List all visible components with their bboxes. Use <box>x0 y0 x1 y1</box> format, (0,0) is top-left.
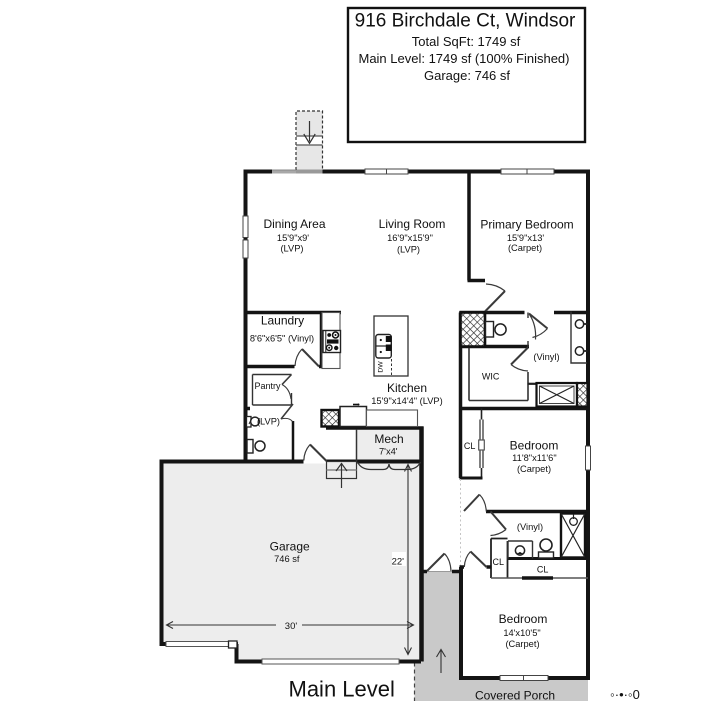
svg-text:Pantry: Pantry <box>254 381 281 391</box>
svg-text:◦·•·◦0: ◦·•·◦0 <box>610 687 640 701</box>
svg-text:Main Level: 1749 sf (100% Fini: Main Level: 1749 sf (100% Finished) <box>358 51 569 66</box>
svg-text:CL: CL <box>464 441 476 451</box>
svg-text:15'9"x14'4" (LVP): 15'9"x14'4" (LVP) <box>371 396 442 406</box>
svg-text:916 Birchdale Ct, Windsor: 916 Birchdale Ct, Windsor <box>355 11 576 32</box>
svg-text:11'8"x11'6": 11'8"x11'6" <box>512 453 556 463</box>
svg-text:Total SqFt: 1749 sf: Total SqFt: 1749 sf <box>412 34 521 49</box>
svg-text:(Vinyl): (Vinyl) <box>517 522 543 532</box>
svg-text:30': 30' <box>285 621 298 632</box>
svg-text:DW: DW <box>378 361 385 373</box>
svg-text:(Vinyl): (Vinyl) <box>533 352 559 362</box>
svg-text:14'x10'5": 14'x10'5" <box>503 628 540 638</box>
svg-text:Laundry: Laundry <box>261 314 304 328</box>
svg-text:Garage: 746 sf: Garage: 746 sf <box>424 68 510 83</box>
svg-text:Primary Bedroom: Primary Bedroom <box>480 217 573 231</box>
svg-text:7'x4': 7'x4' <box>379 447 398 457</box>
svg-text:(LVP): (LVP) <box>257 417 280 427</box>
svg-text:746 sf: 746 sf <box>274 554 300 564</box>
svg-text:(LVP): (LVP) <box>280 244 303 254</box>
svg-text:8'6"x6'5" (Vinyl): 8'6"x6'5" (Vinyl) <box>250 333 314 343</box>
svg-text:15'9"x9': 15'9"x9' <box>277 233 309 243</box>
svg-text:Main Level: Main Level <box>289 677 395 701</box>
svg-text:(Carpet): (Carpet) <box>517 464 551 474</box>
svg-text:Kitchen: Kitchen <box>387 381 427 395</box>
svg-text:CL: CL <box>537 565 549 575</box>
svg-text:15'9"x13': 15'9"x13' <box>507 233 545 243</box>
svg-text:Mech: Mech <box>374 432 403 446</box>
svg-text:Covered Porch: Covered Porch <box>475 689 555 701</box>
svg-text:(Carpet): (Carpet) <box>508 243 542 253</box>
svg-text:CL: CL <box>493 557 505 567</box>
svg-text:Dining Area: Dining Area <box>263 217 325 231</box>
svg-text:WIC: WIC <box>482 372 500 382</box>
svg-text:Bedroom: Bedroom <box>499 612 548 626</box>
svg-text:(LVP): (LVP) <box>397 245 420 255</box>
svg-text:Bedroom: Bedroom <box>510 439 559 453</box>
svg-text:Garage: Garage <box>270 539 310 553</box>
svg-text:16'9"x15'9": 16'9"x15'9" <box>387 233 433 243</box>
svg-text:Living Room: Living Room <box>379 217 446 231</box>
svg-text:(Carpet): (Carpet) <box>505 639 539 649</box>
svg-text:22': 22' <box>392 557 405 568</box>
